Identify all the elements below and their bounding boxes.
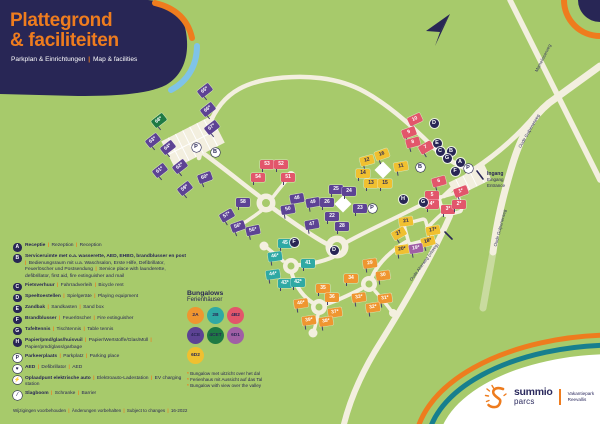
- bungalow-legend-notes: * Bungalow met uitzicht over het dal* Fe…: [187, 371, 282, 389]
- house-marker-14: 14: [356, 169, 370, 178]
- legend-row: ⚡Oplaadpunt elektrische auto | Elektroau…: [13, 376, 189, 389]
- legend-letter-c: C: [13, 283, 22, 292]
- legend-row: ⁄Slagboom | Schranke | Barrier: [13, 391, 189, 400]
- facility-marker-p: P: [464, 164, 473, 173]
- legend-text: Slagboom | Schranke | Barrier: [25, 391, 96, 397]
- house-marker-42: 42*: [291, 278, 305, 287]
- title-line-2: & faciliteiten: [10, 31, 119, 51]
- house-marker-23: 23: [353, 204, 367, 213]
- house-marker-31: 31*: [377, 293, 392, 304]
- house-marker-26: 26: [320, 198, 334, 207]
- separator: |: [55, 283, 61, 288]
- road-entrance: [473, 112, 538, 170]
- legend-text: Receptie | Rezeption | Reception: [25, 243, 102, 249]
- logo-divider: [559, 389, 560, 405]
- corner-navy: [578, 0, 600, 22]
- separator: |: [83, 338, 89, 343]
- facility-marker-b: B: [211, 148, 220, 157]
- legend-row: EZandbak | Sandkasten | Sand box: [13, 305, 189, 314]
- road-mamelisserweg: [510, 0, 600, 180]
- house-marker-24: 24: [342, 187, 356, 196]
- page-title: Plattegrond & faciliteiten: [10, 11, 119, 51]
- facility-marker-c: C: [436, 147, 445, 156]
- bungalow-type-4b2: 4B2: [227, 307, 244, 324]
- legend-row: AReceptie | Rezeption | Reception: [13, 243, 189, 252]
- facilities-legend: AReceptie | Rezeption | ReceptionBServic…: [13, 243, 189, 402]
- legend-text: Fietsverhuur | Fahrradverleih | Bicycle …: [25, 283, 124, 289]
- separator: |: [45, 243, 51, 248]
- facility-marker-a: A: [456, 158, 465, 167]
- sun-icon: [484, 383, 510, 410]
- house-marker-46: 46*: [267, 251, 282, 262]
- legend-text: Oplaadpunt elektrische auto | Elektroaut…: [25, 376, 189, 389]
- bungalow-legend-subtitle: Ferienhäuser: [187, 297, 282, 303]
- house-marker-11: 11: [393, 160, 408, 171]
- parking-icon: P: [13, 354, 22, 363]
- house-marker-52: 52: [274, 160, 288, 169]
- bungalow-note: * Bungalow with view over the valley: [187, 383, 282, 389]
- separator: |: [84, 354, 90, 359]
- house-marker-33: 33*: [351, 292, 366, 303]
- legend-text: Parkeerplaats | Parkplatz | Parking plac…: [25, 354, 119, 360]
- facility-marker-f: F: [290, 238, 299, 247]
- page-subtitle: Parkplan & Einrichtungen | Map & facilit…: [11, 56, 137, 63]
- separator: |: [50, 327, 56, 332]
- legend-row: BServiceruimte met o.a. wasserette, AED,…: [13, 254, 189, 280]
- aed-icon: ♥: [13, 365, 22, 374]
- house-marker-49: 49: [305, 196, 320, 207]
- separator: |: [61, 294, 67, 299]
- separator: |: [57, 354, 63, 359]
- house-marker-5: 5: [425, 191, 439, 200]
- barrier-icon: ⁄: [13, 391, 22, 400]
- facility-marker-g: G: [443, 154, 452, 163]
- subtitle-part: Parkplan & Einrichtungen: [11, 56, 85, 63]
- house-marker-22: 22: [325, 212, 339, 221]
- footer-part: Änderungen vorbehalten: [72, 408, 121, 413]
- house-marker-2: 2*: [452, 200, 466, 209]
- title-line-1: Plattegrond: [10, 11, 119, 31]
- footer-part: Wijzigingen voorbehouden: [13, 408, 66, 413]
- house-marker-34: 34: [344, 274, 358, 283]
- house-marker-39: 39*: [301, 315, 316, 326]
- separator: |: [75, 391, 81, 396]
- separator: |: [91, 376, 97, 381]
- house-marker-41: 41: [301, 259, 315, 268]
- bungalow-type-4ce: 4CE: [187, 327, 204, 344]
- road-gulpenerweg: [493, 66, 600, 252]
- house-marker-36: 36: [325, 293, 339, 302]
- legend-row: GTafeltennis | Tischtennis | Table tenni…: [13, 327, 189, 336]
- bungalow-type-6d2: 6D2: [187, 347, 204, 364]
- separator: |: [77, 305, 83, 310]
- house-marker-21: 21: [398, 216, 413, 227]
- bungalow-type-2a: 2A: [187, 307, 204, 324]
- building: [375, 162, 392, 179]
- facility-marker-d: D: [330, 246, 339, 255]
- legend-text: AED | Defibrillator | AED: [25, 365, 82, 371]
- house-marker-47: 47: [304, 218, 319, 229]
- footer-disclaimer: Wijzigingen voorbehouden | Änderungen vo…: [13, 408, 187, 413]
- house-marker-32: 32*: [365, 302, 380, 313]
- house-marker-38: 38*: [318, 316, 333, 327]
- brand-name: summio parcs: [514, 387, 552, 407]
- compass-icon: [426, 14, 450, 46]
- legend-letter-b: B: [13, 254, 22, 263]
- facility-marker-h: H: [399, 195, 408, 204]
- house-marker-51: 51: [281, 173, 295, 182]
- facility-marker-b: B: [416, 163, 425, 172]
- ev-charger-icon: ⚡: [13, 376, 22, 385]
- footer-part: Subject to changes: [127, 408, 165, 413]
- house-marker-25: 25: [329, 185, 343, 194]
- facility-marker-f: F: [451, 167, 460, 176]
- bungalow-type-6d1: 6D1: [227, 327, 244, 344]
- house-marker-54: 54: [251, 173, 265, 182]
- separator: |: [148, 338, 153, 343]
- bungalow-type-2b: 2B: [207, 307, 224, 324]
- house-marker-28: 28: [335, 222, 349, 231]
- legend-text: Tafeltennis | Tischtennis | Table tennis: [25, 327, 113, 333]
- legend-letter-f: F: [13, 316, 22, 325]
- legend-text: Brandblusser | Feuerlöscher | Fire extin…: [25, 316, 133, 322]
- footer-part: 16-2022: [171, 408, 188, 413]
- facility-marker-p: P: [192, 143, 201, 152]
- facility-marker-g: G: [419, 198, 428, 207]
- house-marker-53: 53: [260, 160, 274, 169]
- house-marker-20: 20*: [394, 244, 409, 255]
- park-map-poster: Plattegrond & faciliteiten Parkplan & Ei…: [0, 0, 600, 424]
- separator: |: [57, 316, 63, 321]
- legend-text: Zandbak | Sandkasten | Sand box: [25, 305, 104, 311]
- separator: |: [91, 316, 97, 321]
- house-marker-48: 48: [289, 192, 304, 203]
- legend-row: HPapier/pmd/glas/huisvuil | Papier/Werts…: [13, 338, 189, 351]
- separator: |: [85, 56, 93, 63]
- legend-row: PParkeerplaats | Parkplatz | Parking pla…: [13, 354, 189, 363]
- house-marker-15: 15: [378, 179, 392, 188]
- legend-letter-e: E: [13, 305, 22, 314]
- bungalow-type-4cet: 4CET: [207, 327, 224, 344]
- separator: |: [149, 376, 155, 381]
- legend-text: Serviceruimte met o.a. wasserette, AED, …: [25, 254, 189, 280]
- bungalow-legend: Bungalows Ferienhäuser 2A2B4B24CE4CET6D1…: [187, 290, 282, 389]
- house-marker-35: 35: [316, 284, 330, 293]
- separator: |: [81, 327, 87, 332]
- house-marker-43: 43*: [278, 279, 292, 288]
- facility-marker-p: P: [368, 204, 377, 213]
- legend-letter-d: D: [13, 294, 22, 303]
- subtitle-part: Map & facilities: [93, 56, 137, 63]
- legend-letter-a: A: [13, 243, 22, 252]
- legend-row: DSpeeltoestellen | Spielgeräte | Playing…: [13, 294, 189, 303]
- separator: |: [93, 267, 99, 272]
- park-name: Vakantiepark Reevallis: [568, 391, 594, 402]
- house-marker-19: 19*: [408, 242, 423, 253]
- legend-row: FBrandblusser | Feuerlöscher | Fire exti…: [13, 316, 189, 325]
- separator: |: [92, 283, 98, 288]
- road-gulpenerweg-fade: [483, 252, 493, 308]
- separator: |: [66, 365, 72, 370]
- house-marker-50: 50: [280, 203, 295, 214]
- entrance-label: Ingang Eingang Entrance: [487, 171, 505, 189]
- house-marker-58: 58: [236, 198, 250, 207]
- facility-marker-d: D: [430, 119, 439, 128]
- legend-text: Speeltoestellen | Spielgeräte | Playing …: [25, 294, 138, 300]
- separator: |: [74, 243, 80, 248]
- house-marker-30: 30: [375, 270, 390, 281]
- separator: |: [92, 294, 98, 299]
- legend-letter-g: G: [13, 327, 22, 336]
- bungalow-type-swatches: 2A2B4B24CE4CET6D16D2: [187, 307, 251, 364]
- house-marker-13: 13: [364, 179, 378, 188]
- house-marker-17: 17*: [425, 224, 440, 235]
- legend-text: Papier/pmd/glas/huisvuil | Papier/Wertst…: [25, 338, 189, 351]
- bungalow-legend-title: Bungalows: [187, 290, 282, 297]
- house-marker-40: 40*: [293, 298, 308, 309]
- separator: |: [49, 391, 55, 396]
- legend-row: ♥AED | Defibrillator | AED: [13, 365, 189, 374]
- separator: |: [35, 365, 41, 370]
- house-marker-29: 29: [362, 258, 377, 269]
- separator: |: [45, 305, 51, 310]
- legend-letter-h: H: [13, 338, 22, 347]
- brand-logo: summio parcs Vakantiepark Reevallis: [484, 383, 594, 410]
- legend-row: CFietsverhuur | Fahrradverleih | Bicycle…: [13, 283, 189, 292]
